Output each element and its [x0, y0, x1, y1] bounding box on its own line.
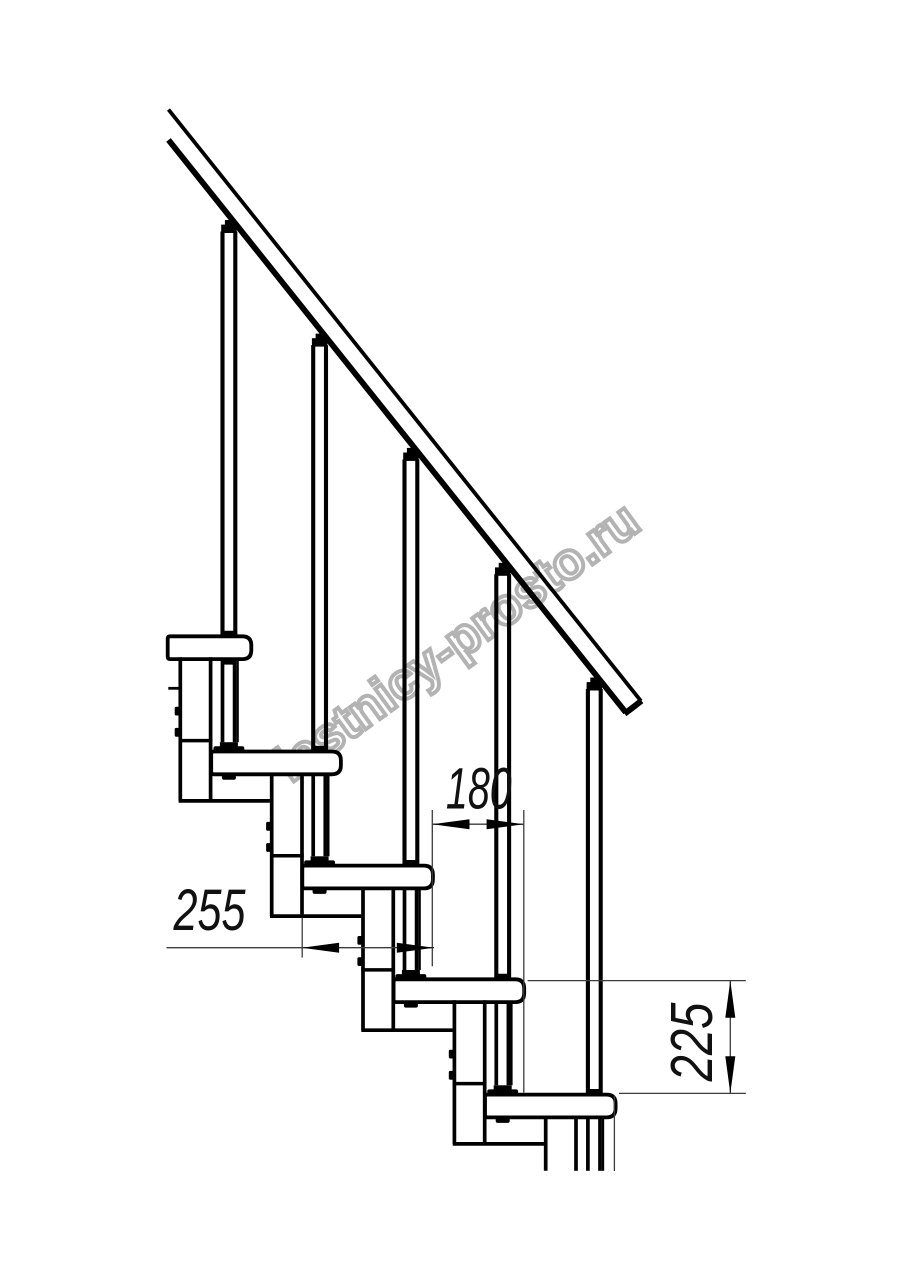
- svg-text:180: 180: [446, 756, 512, 821]
- svg-text:255: 255: [173, 878, 246, 943]
- svg-text:225: 225: [660, 1002, 725, 1082]
